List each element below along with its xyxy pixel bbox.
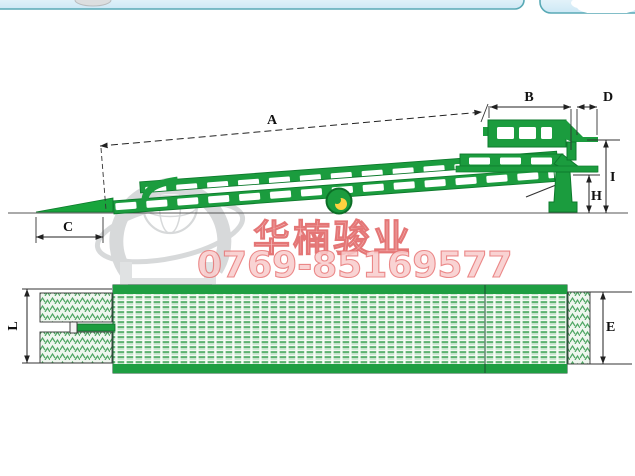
page: A B D C I: [0, 0, 635, 476]
plan-deck-bottom-edge: [113, 364, 567, 373]
approach-wedge: [36, 198, 113, 212]
platform-deck-lip: [456, 166, 598, 172]
plan-rear-lip: [568, 292, 590, 364]
plan-view: L E: [6, 285, 632, 373]
wheel: [327, 189, 352, 214]
plan-tow-hook: [70, 322, 77, 333]
top-bar: [0, 0, 635, 15]
dimension-d-label: D: [603, 90, 613, 105]
platform-rail: [460, 154, 563, 166]
plan-deck: [113, 285, 567, 373]
watermark-phone: 0769-85169577: [197, 245, 513, 286]
dimension-c-label: C: [63, 220, 73, 235]
dimension-l-label: L: [6, 321, 21, 330]
dimension-b-label: B: [524, 90, 533, 105]
dimension-i-label: I: [610, 170, 615, 185]
dimension-e-label: E: [606, 320, 615, 335]
plan-wedge-top: [40, 293, 112, 322]
dimension-h-label: H: [591, 189, 602, 204]
dimension-d: D: [577, 90, 613, 135]
diagram-canvas: A B D C I: [0, 0, 635, 476]
dimension-e: E: [584, 292, 632, 364]
plan-wedge-bottom: [40, 332, 112, 363]
dimension-c: C: [36, 217, 103, 243]
plan-deck-top-edge: [113, 285, 567, 294]
dimension-a-label: A: [267, 113, 278, 128]
plan-tow-bar: [74, 324, 115, 331]
